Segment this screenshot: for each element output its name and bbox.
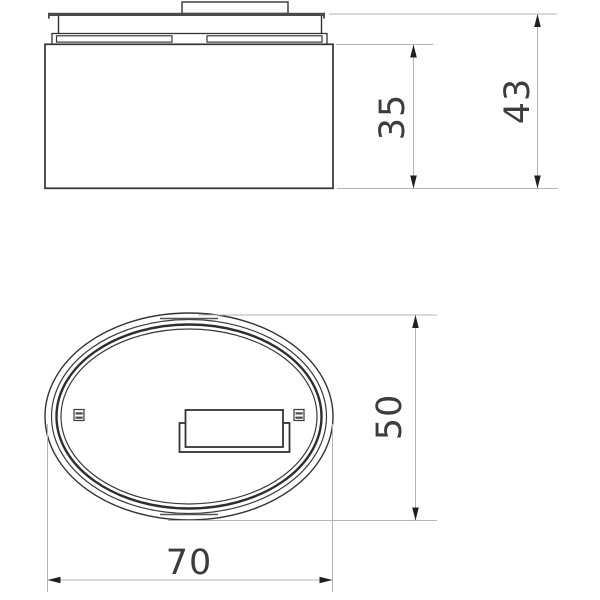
clip-left-bar-2	[76, 417, 83, 419]
arrow-down-43	[534, 176, 541, 189]
dim-label-50: 50	[370, 394, 410, 441]
cover-plate-edge-left	[48, 13, 50, 19]
body-outline	[45, 44, 333, 188]
arrow-up-35	[410, 45, 417, 58]
arrow-up-43	[534, 14, 541, 27]
arrow-up-50	[412, 315, 419, 328]
cover-plate-edge-right	[323, 13, 325, 19]
side-view	[45, 2, 333, 188]
dim-label-70: 70	[166, 543, 213, 583]
plan-view-dimensions: 50 70	[48, 315, 438, 592]
cover-plate-bar	[48, 13, 325, 16]
drawing-canvas: 35 43 50	[0, 0, 600, 600]
dim-label-35: 35	[373, 94, 413, 141]
clip-right-bar-1	[296, 412, 303, 414]
clip-left-bar-1	[76, 412, 83, 414]
clip-left-outline	[74, 410, 84, 421]
clip-right-bar-2	[296, 417, 303, 419]
dim-label-43: 43	[498, 78, 538, 125]
side-view-dimensions: 35 43	[329, 14, 558, 189]
terminal-slot-inner	[186, 410, 284, 447]
arrow-down-50	[412, 508, 419, 521]
plan-view	[45, 313, 333, 520]
clip-right-outline	[294, 410, 304, 421]
clip-right	[294, 410, 304, 421]
clip-left	[74, 410, 84, 421]
arrow-left-70	[48, 577, 61, 584]
mounting-boss-outline	[182, 2, 288, 14]
arrow-down-35	[410, 176, 417, 189]
arrow-right-70	[320, 577, 333, 584]
technical-drawing: 35 43 50	[0, 0, 600, 600]
